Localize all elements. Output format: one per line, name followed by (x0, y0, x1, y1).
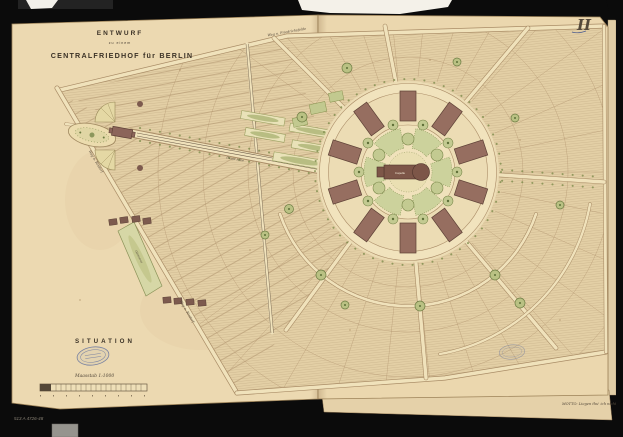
situation-label: SITUATION (75, 338, 135, 345)
title-line3: CENTRALFRIEDHOF für BERLIN (51, 51, 194, 60)
chapel-label: Capelle (395, 171, 406, 175)
title-line1: ENTWURF (97, 30, 144, 37)
catalog-number: 513 A 4726-48 (14, 416, 44, 421)
svg-text:II: II (576, 16, 592, 34)
scale-note: Maasstab 1:1000 (74, 373, 114, 379)
corner-tab (52, 424, 78, 437)
gate-tree (137, 101, 143, 107)
mount-edge-right (616, 0, 623, 437)
photographed-book-page: Capelle Weg n. Friedrichsfelde Weg n. Ri… (0, 0, 623, 437)
underlying-page-edge-right (608, 20, 616, 395)
gate-tree (137, 165, 143, 171)
chapel-building: Capelle (377, 164, 430, 181)
title-line2: zu einem (109, 41, 132, 45)
motto-text: MOTTO: Liegen thu' ich nicht (561, 402, 617, 406)
